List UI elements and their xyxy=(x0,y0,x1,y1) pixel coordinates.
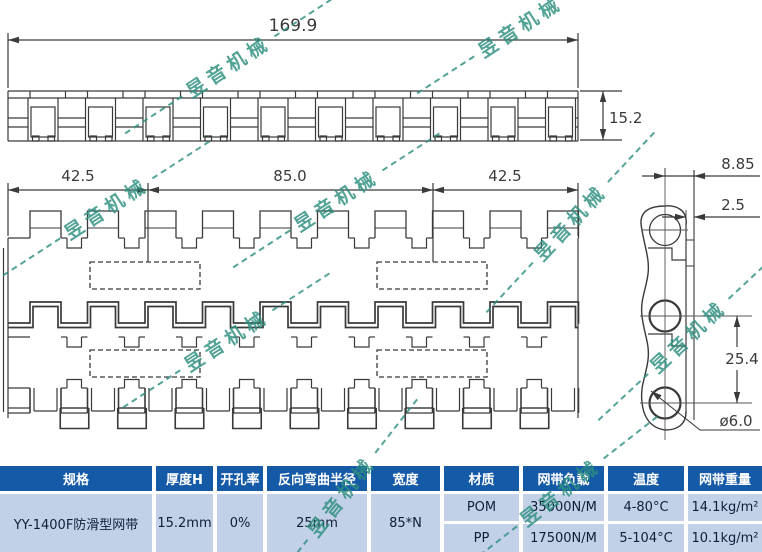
spec-name: YY-1400F防滑型网带 xyxy=(0,494,152,552)
dim-plate-offset: 2.5 xyxy=(721,196,745,214)
dim-overall-width: 169.9 xyxy=(269,16,318,36)
spec-thickness: 15.2mm xyxy=(156,494,213,552)
material-pp: PP xyxy=(444,524,519,552)
dim-side-width: 8.85 xyxy=(721,155,754,173)
col-header-temperature: 温度 xyxy=(608,466,684,491)
weight-pp: 10.1kg/m² xyxy=(688,524,762,552)
col-header-width: 宽度 xyxy=(371,466,440,491)
temperature-pom: 4-80°C xyxy=(608,494,684,521)
dim-center-span: 85.0 xyxy=(273,167,306,185)
col-header-open-rate: 开孔率 xyxy=(217,466,263,491)
dim-hole-diameter: ø6.0 xyxy=(719,412,752,430)
dim-hole-pitch: 25.4 xyxy=(725,350,758,368)
col-header-spec: 规格 xyxy=(0,466,152,491)
temperature-pp: 5-104°C xyxy=(608,524,684,552)
spec-bend-radius: 25mm xyxy=(267,494,367,552)
material-pom: POM xyxy=(444,494,519,521)
weight-pom: 14.1kg/m² xyxy=(688,494,762,521)
technical-drawing: 169.9 15.2 42.5 85.0 42.5 8.85 2.5 25.4 … xyxy=(0,0,762,462)
dim-edge-left: 42.5 xyxy=(61,167,94,185)
col-header-weight: 网带重量 xyxy=(688,466,762,491)
load-pom: 35000N/M xyxy=(523,494,604,521)
col-header-thickness: 厚度H xyxy=(156,466,213,491)
load-pp: 17500N/M xyxy=(523,524,604,552)
dim-thickness: 15.2 xyxy=(609,109,642,127)
col-header-material: 材质 xyxy=(444,466,519,491)
dimension-labels: 169.9 15.2 42.5 85.0 42.5 8.85 2.5 25.4 … xyxy=(61,16,758,430)
col-header-bend-radius: 反向弯曲半径 xyxy=(267,466,367,491)
belt-drawing-page: 169.9 15.2 42.5 85.0 42.5 8.85 2.5 25.4 … xyxy=(0,0,762,552)
spec-width: 85*N xyxy=(371,494,440,552)
col-header-load: 网带负载 xyxy=(523,466,604,491)
spec-table: 规格 厚度H 开孔率 反向弯曲半径 宽度 材质 网带负载 温度 网带重量 YY-… xyxy=(0,466,762,552)
spec-open-rate: 0% xyxy=(217,494,263,552)
dim-edge-right: 42.5 xyxy=(488,167,521,185)
